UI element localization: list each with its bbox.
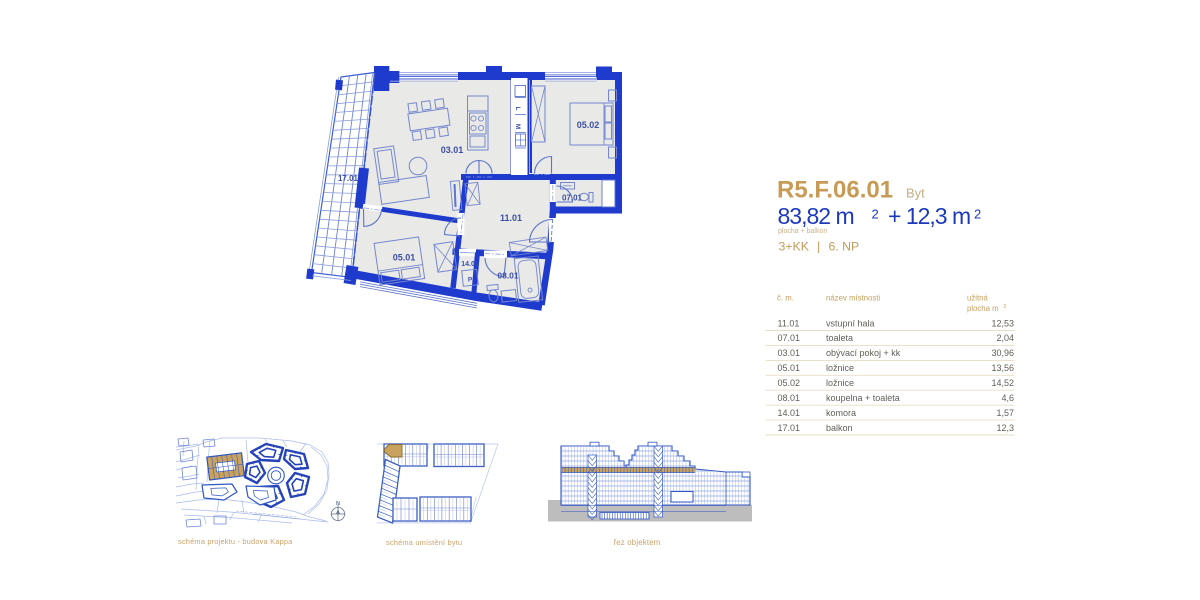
svg-text:05.01: 05.01 [393, 253, 416, 263]
svg-text:05.02: 05.02 [778, 378, 801, 388]
svg-text:17.01: 17.01 [778, 423, 801, 433]
svg-text:R5.F.06.01: R5.F.06.01 [777, 177, 893, 204]
svg-text:M: M [514, 124, 521, 129]
svg-text:03.01: 03.01 [441, 145, 464, 155]
svg-text:L: L [514, 107, 521, 111]
svg-text:07.01: 07.01 [562, 194, 583, 203]
svg-text:schéma projektu - budova Kappa: schéma projektu - budova Kappa [178, 537, 293, 546]
svg-text:05.02: 05.02 [577, 120, 600, 130]
svg-text:název místnosti: název místnosti [826, 294, 880, 303]
svg-text:12,53: 12,53 [991, 318, 1014, 328]
svg-text:P: P [468, 277, 473, 284]
svg-text:vstupní hala: vstupní hala [826, 318, 875, 328]
svg-text:schéma umístění bytu: schéma umístění bytu [386, 538, 462, 547]
svg-text:6. NP: 6. NP [829, 239, 860, 253]
svg-text:11.01: 11.01 [778, 318, 800, 328]
svg-text:30,96: 30,96 [991, 348, 1014, 358]
svg-text:toaleta: toaleta [826, 333, 853, 343]
svg-text:14.01: 14.01 [778, 408, 801, 418]
svg-text:plocha + balkon: plocha + balkon [778, 228, 827, 235]
svg-text:05.01: 05.01 [778, 363, 801, 373]
svg-text:2: 2 [1004, 304, 1007, 310]
svg-text:komora: komora [826, 408, 856, 418]
svg-text:řez objektem: řez objektem [613, 538, 660, 547]
svg-text:balkon: balkon [826, 423, 853, 433]
svg-text:2: 2 [974, 207, 981, 222]
svg-text:3+KK: 3+KK [779, 239, 810, 253]
svg-text:ložnice: ložnice [826, 378, 854, 388]
svg-text:03.01: 03.01 [778, 348, 801, 358]
svg-text:12,3: 12,3 [996, 423, 1014, 433]
svg-text:13,56: 13,56 [991, 363, 1014, 373]
svg-text:č. m.: č. m. [777, 294, 794, 303]
svg-text:17.01: 17.01 [338, 174, 359, 183]
svg-text:4,6: 4,6 [1001, 393, 1014, 403]
svg-text:08.01: 08.01 [497, 271, 519, 281]
svg-text:2,04: 2,04 [996, 333, 1014, 343]
svg-text:ložnice: ložnice [826, 363, 854, 373]
svg-text:plocha m: plocha m [967, 304, 999, 313]
svg-text:|: | [817, 239, 820, 253]
svg-text:obývací pokoj + kk: obývací pokoj + kk [826, 348, 901, 358]
svg-text:11.01: 11.01 [500, 213, 522, 223]
svg-text:14.01: 14.01 [461, 261, 479, 268]
svg-text:14,52: 14,52 [991, 378, 1014, 388]
svg-text:užitná: užitná [967, 294, 988, 303]
svg-text:07.01: 07.01 [778, 333, 801, 343]
svg-text:koupelna + toaleta: koupelna + toaleta [826, 393, 900, 403]
svg-text:1,57: 1,57 [996, 408, 1014, 418]
svg-text:N: N [336, 501, 340, 507]
svg-text:83,82 m: 83,82 m [778, 203, 854, 229]
svg-text:+ 12,3 m: + 12,3 m [888, 203, 970, 229]
svg-text:2: 2 [872, 207, 879, 222]
svg-text:Byt: Byt [906, 186, 925, 201]
svg-text:08.01: 08.01 [778, 393, 801, 403]
